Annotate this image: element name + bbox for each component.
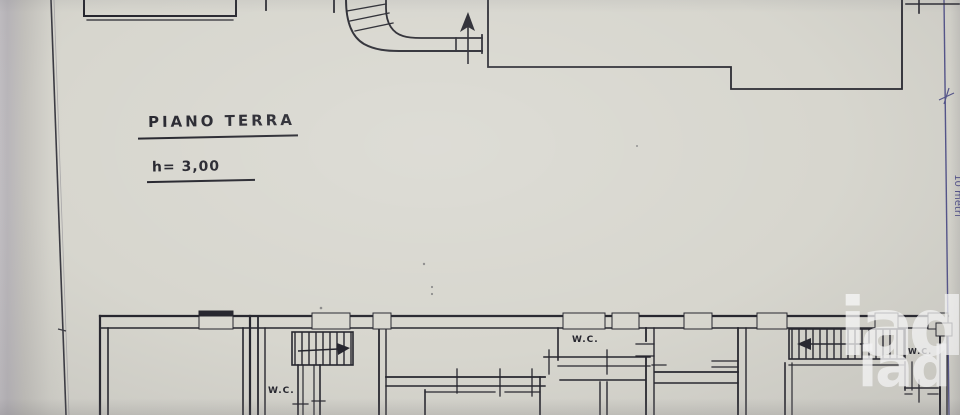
height-note: h= 3,00 — [152, 159, 220, 176]
floor-plan-drawing — [0, 0, 960, 415]
staircase-left — [292, 332, 353, 365]
upper-building-outline — [84, 0, 959, 89]
room-label-wc-3: W.C. — [908, 347, 932, 356]
plan-title: PIANO TERRA — [148, 111, 295, 131]
scale-label: 10 metri — [952, 174, 960, 217]
paper-specks — [320, 145, 638, 309]
floor-plan-photo: PIANO TERRA h= 3,00 W.C. W.C. W.C. 10 me… — [0, 0, 960, 415]
staircase-right — [789, 329, 905, 359]
sheet-border-left — [51, 0, 69, 415]
room-label-wc-1: W.C. — [268, 386, 295, 396]
room-label-wc-2: W.C. — [572, 335, 599, 345]
